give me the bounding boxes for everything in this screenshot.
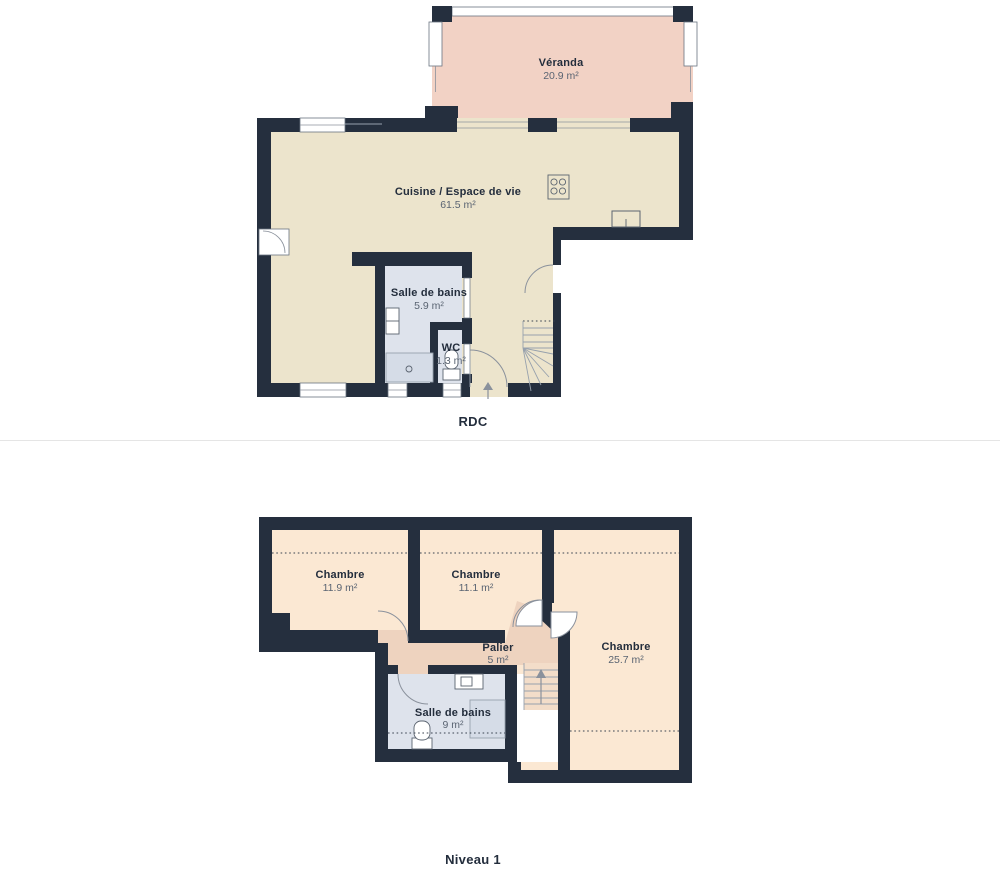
veranda-post-icon bbox=[673, 6, 693, 22]
stairs-n1 bbox=[524, 663, 558, 710]
wall-stub bbox=[425, 106, 458, 118]
shower-icon bbox=[386, 353, 433, 382]
rdc-floor bbox=[271, 132, 679, 383]
floor-label-niveau1: Niveau 1 bbox=[445, 852, 501, 867]
room-label: Cuisine / Espace de vie bbox=[395, 186, 521, 198]
room-label: Palier bbox=[482, 642, 514, 654]
wall bbox=[505, 665, 517, 762]
room-area: 20.9 m² bbox=[543, 70, 579, 82]
room-label: Véranda bbox=[539, 57, 584, 69]
wall bbox=[352, 252, 472, 266]
room-area: 5 m² bbox=[488, 654, 510, 666]
veranda-glass-wall-icon bbox=[452, 7, 674, 16]
door-opening bbox=[378, 630, 408, 643]
wall bbox=[542, 530, 554, 603]
room-label: Chambre bbox=[601, 641, 650, 653]
wall bbox=[408, 530, 420, 630]
shower-icon bbox=[470, 700, 505, 738]
sliding-door-opening bbox=[457, 118, 528, 132]
room-label: Chambre bbox=[315, 569, 364, 581]
room-area: 1.3 m² bbox=[436, 355, 466, 367]
void-area bbox=[517, 674, 524, 710]
room-label: Salle de bains bbox=[391, 287, 467, 299]
room-label: WC bbox=[442, 342, 461, 354]
sink-icon bbox=[455, 674, 483, 689]
void-area bbox=[517, 710, 558, 762]
toilet-tank-icon bbox=[443, 369, 460, 380]
niche-icon bbox=[259, 229, 289, 255]
room-area: 61.5 m² bbox=[440, 199, 476, 211]
rdc-plan: Véranda 20.9 m² Cuisine / Espace de vie … bbox=[0, 0, 1000, 440]
room-area: 5.9 m² bbox=[414, 300, 444, 312]
room-area: 11.9 m² bbox=[323, 582, 358, 594]
window-icon bbox=[429, 22, 442, 66]
side-door-opening bbox=[553, 265, 561, 293]
sliding-door-opening bbox=[557, 118, 630, 132]
wall bbox=[430, 322, 472, 330]
room-area: 9 m² bbox=[443, 719, 465, 731]
floor-label-rdc: RDC bbox=[458, 414, 487, 429]
room-label: Chambre bbox=[451, 569, 500, 581]
niveau1-plan: Chambre 11.9 m² Chambre 11.1 m² Chambre … bbox=[0, 440, 1000, 871]
toilet-icon bbox=[414, 721, 430, 740]
veranda-post-icon bbox=[432, 6, 452, 22]
door-opening bbox=[398, 665, 428, 674]
room-label: Salle de bains bbox=[415, 707, 491, 719]
wall bbox=[558, 626, 570, 772]
room-area: 25.7 m² bbox=[608, 654, 644, 666]
wall bbox=[375, 252, 385, 385]
room-area: 11.1 m² bbox=[459, 582, 494, 594]
wall-stub bbox=[671, 102, 693, 118]
floorplan-viewer: Véranda 20.9 m² Cuisine / Espace de vie … bbox=[0, 0, 1000, 871]
window-icon bbox=[684, 22, 697, 66]
